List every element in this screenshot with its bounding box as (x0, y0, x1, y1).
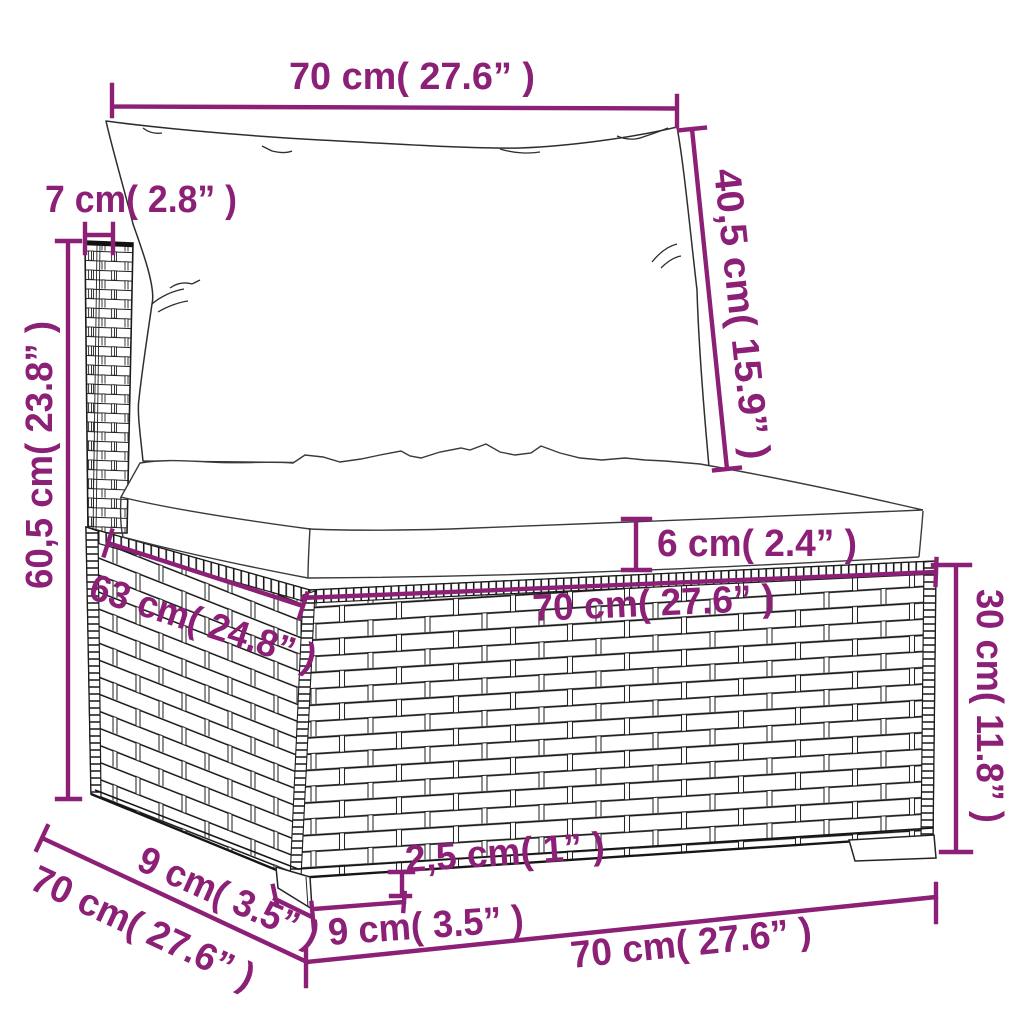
svg-text:60,5 cm( 23.8” ): 60,5 cm( 23.8” ) (19, 321, 61, 589)
svg-text:30 cm( 11.8” ): 30 cm( 11.8” ) (968, 589, 1010, 823)
svg-text:70 cm( 27.6” ): 70 cm( 27.6” ) (289, 56, 535, 98)
svg-text:6 cm( 2.4” ): 6 cm( 2.4” ) (657, 523, 857, 565)
svg-text:7 cm( 2.8” ): 7 cm( 2.8” ) (45, 179, 237, 221)
